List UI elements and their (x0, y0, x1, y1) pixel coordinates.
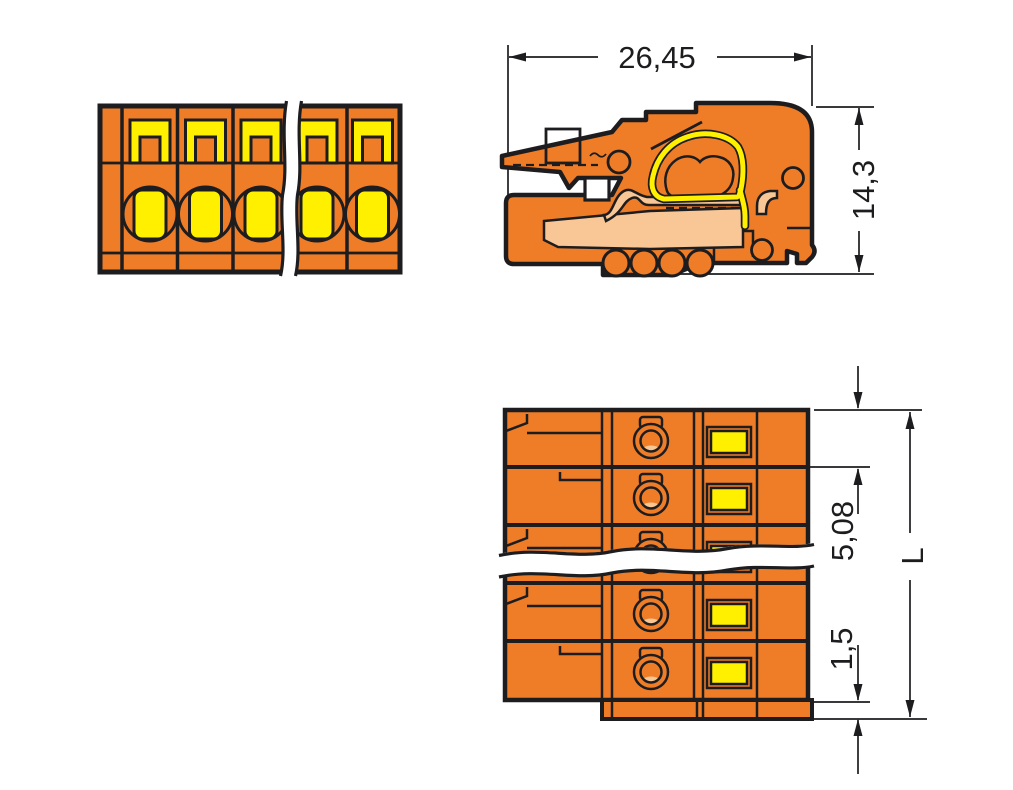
rear-window (707, 427, 751, 457)
dimension-height-label: 14,3 (846, 160, 881, 220)
dimension-length-label: L (895, 547, 930, 564)
dimension-total-width-label: 26,45 (618, 40, 696, 75)
housing-recess (752, 240, 773, 261)
rear-window (707, 484, 751, 514)
rear-ring (634, 590, 668, 631)
front-view (100, 101, 400, 276)
side-section-view (502, 103, 815, 276)
rear-bottom-strip (602, 700, 812, 719)
clamp-lever (665, 156, 733, 197)
drawing-stage: 26,45 14,3 5,08 1,5 L (0, 0, 1013, 790)
rear-ring (634, 417, 668, 458)
dimension-pitch-label: 5,08 (825, 501, 860, 561)
rear-window (707, 600, 751, 630)
contact-opening (585, 178, 609, 200)
rear-window (707, 658, 751, 688)
rear-ring (634, 648, 668, 689)
technical-drawing-canvas: 26,45 14,3 5,08 1,5 L (0, 0, 1013, 790)
rear-ring (634, 474, 668, 515)
rear-view (499, 410, 814, 719)
dimension-offset-label: 1,5 (824, 627, 859, 670)
operating-hole (608, 151, 630, 173)
housing-recess (783, 168, 804, 189)
front-break-line (281, 101, 302, 276)
